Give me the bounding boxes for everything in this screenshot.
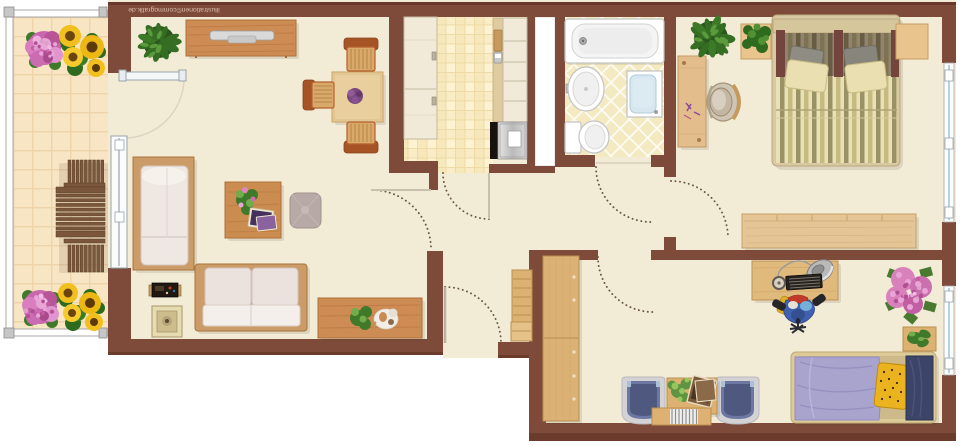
svg-text:illustrationen©commografik.de: illustrationen©commografik.de: [128, 6, 220, 14]
